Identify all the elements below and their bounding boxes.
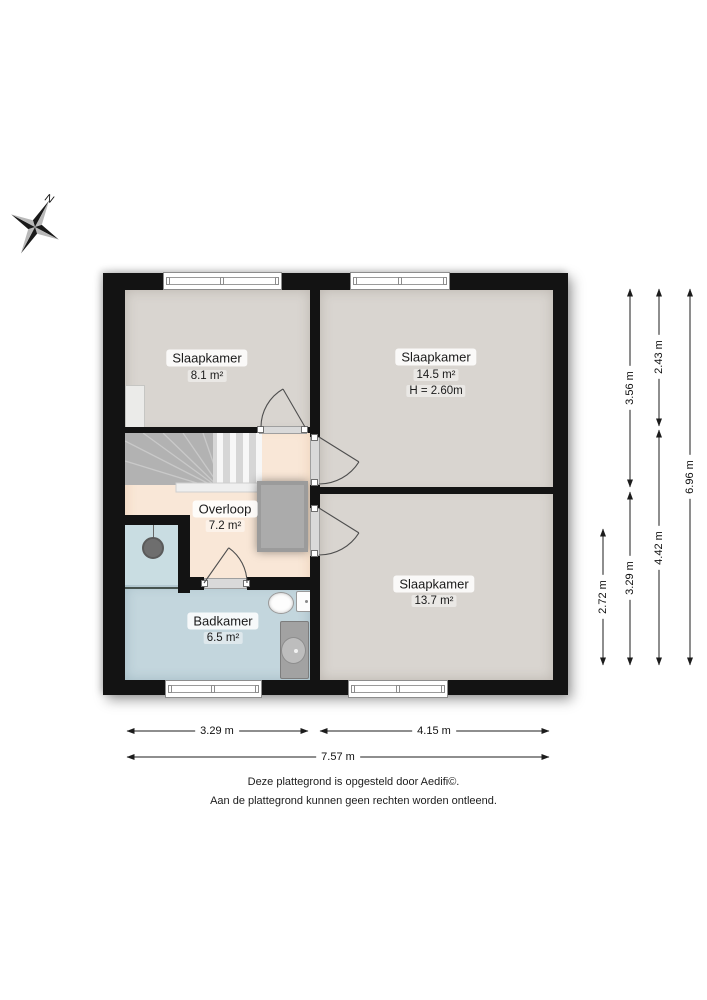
doorframe-bedroom2 bbox=[310, 437, 320, 485]
footer-credit: Deze plattegrond is opgesteld door Aedif… bbox=[0, 776, 707, 788]
compass-rose-icon bbox=[4, 194, 72, 262]
window-mullion bbox=[351, 685, 355, 693]
door-jamb bbox=[311, 434, 318, 441]
dim-right-inner-bottom: 3.29 m bbox=[624, 556, 636, 600]
room-area-slaapkamer-3: 13.7 m² bbox=[412, 595, 457, 607]
wall-bedrooms-top-divider bbox=[310, 289, 320, 433]
room-area-badkamer: 6.5 m² bbox=[204, 632, 243, 644]
room-label-slaapkamer-2: Slaapkamer bbox=[395, 349, 476, 366]
window-mullion bbox=[168, 685, 172, 693]
toilet bbox=[268, 592, 294, 614]
dim-right-total: 6.96 m bbox=[684, 455, 696, 499]
room-height-slaapkamer-2: H = 2.60m bbox=[406, 385, 465, 397]
dim-bottom-left: 3.29 m bbox=[195, 725, 239, 737]
window-top-right bbox=[350, 272, 450, 290]
wall-bathroom-right bbox=[247, 577, 310, 590]
dim-bottom-right: 4.15 m bbox=[412, 725, 456, 737]
dim-right-bath-height: 2.72 m bbox=[597, 575, 609, 619]
window-bottom-left bbox=[165, 680, 262, 698]
window-mullion bbox=[275, 277, 279, 285]
door-jamb bbox=[301, 426, 308, 433]
door-jamb bbox=[311, 479, 318, 486]
room-label-overloop: Overloop bbox=[193, 501, 258, 518]
window-mullion bbox=[396, 685, 400, 693]
dim-right-room-bottom: 4.42 m bbox=[653, 526, 665, 570]
wall-bedrooms-right-divider bbox=[310, 487, 553, 494]
doorframe-bedroom1 bbox=[259, 426, 307, 434]
floorplan-page: N bbox=[0, 0, 707, 1000]
doorframe-badkamer bbox=[204, 578, 247, 589]
dim-bottom-total: 7.57 m bbox=[316, 751, 360, 763]
room-area-overloop: 7.2 m² bbox=[206, 520, 245, 532]
staircase bbox=[125, 433, 262, 493]
dim-right-inner-top: 3.56 m bbox=[624, 366, 636, 410]
room-area-slaapkamer-2: 14.5 m² bbox=[414, 369, 459, 381]
wall-shower-top bbox=[103, 515, 190, 525]
footer-disclaimer: Aan de plattegrond kunnen geen rechten w… bbox=[0, 795, 707, 807]
window-mullion bbox=[211, 685, 215, 693]
window-mullion bbox=[441, 685, 445, 693]
room-label-badkamer: Badkamer bbox=[187, 613, 258, 630]
shower-screen bbox=[125, 587, 179, 589]
window-bottom-right bbox=[348, 680, 448, 698]
room-area-slaapkamer-1: 8.1 m² bbox=[188, 370, 227, 382]
door-jamb bbox=[243, 580, 250, 587]
vanity-drain-icon bbox=[294, 649, 298, 653]
window-mullion bbox=[255, 685, 259, 693]
window-mullion bbox=[166, 277, 170, 285]
door-jamb bbox=[311, 550, 318, 557]
landing-rug bbox=[257, 481, 308, 552]
window-top-left bbox=[163, 272, 282, 290]
window-mullion bbox=[398, 277, 402, 285]
wall-bedroom1-landing bbox=[125, 427, 261, 433]
doorframe-bedroom3 bbox=[310, 508, 320, 556]
shower-drain-icon bbox=[142, 537, 164, 559]
hand-basin-tap-icon bbox=[305, 600, 308, 603]
wall-exterior-left bbox=[103, 273, 125, 695]
wall-exterior-right bbox=[553, 273, 568, 695]
room-label-slaapkamer-3: Slaapkamer bbox=[393, 576, 474, 593]
dim-right-room-top: 2.43 m bbox=[653, 335, 665, 379]
wall-recess bbox=[125, 385, 145, 428]
window-mullion bbox=[443, 277, 447, 285]
door-jamb bbox=[257, 426, 264, 433]
door-jamb bbox=[201, 580, 208, 587]
door-jamb bbox=[311, 505, 318, 512]
window-mullion bbox=[353, 277, 357, 285]
window-mullion bbox=[220, 277, 224, 285]
room-label-slaapkamer-1: Slaapkamer bbox=[166, 350, 247, 367]
